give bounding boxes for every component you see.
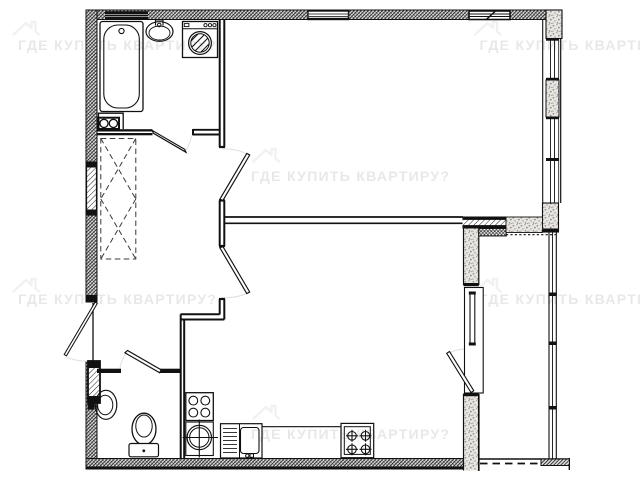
svg-text:ГДЕ КУПИТЬ КВАРТИРУ?: ГДЕ КУПИТЬ КВАРТИРУ? xyxy=(18,291,217,307)
svg-text:ГДЕ КУПИТЬ КВАРТИРУ?: ГДЕ КУПИТЬ КВАРТИРУ? xyxy=(18,37,217,53)
svg-text:ГДЕ КУПИТЬ КВАРТИРУ?: ГДЕ КУПИТЬ КВАРТИРУ? xyxy=(480,291,640,307)
svg-text:ГДЕ КУПИТЬ КВАРТИРУ?: ГДЕ КУПИТЬ КВАРТИРУ? xyxy=(480,37,640,53)
svg-text:ГДЕ КУПИТЬ КВАРТИРУ?: ГДЕ КУПИТЬ КВАРТИРУ? xyxy=(251,168,450,184)
